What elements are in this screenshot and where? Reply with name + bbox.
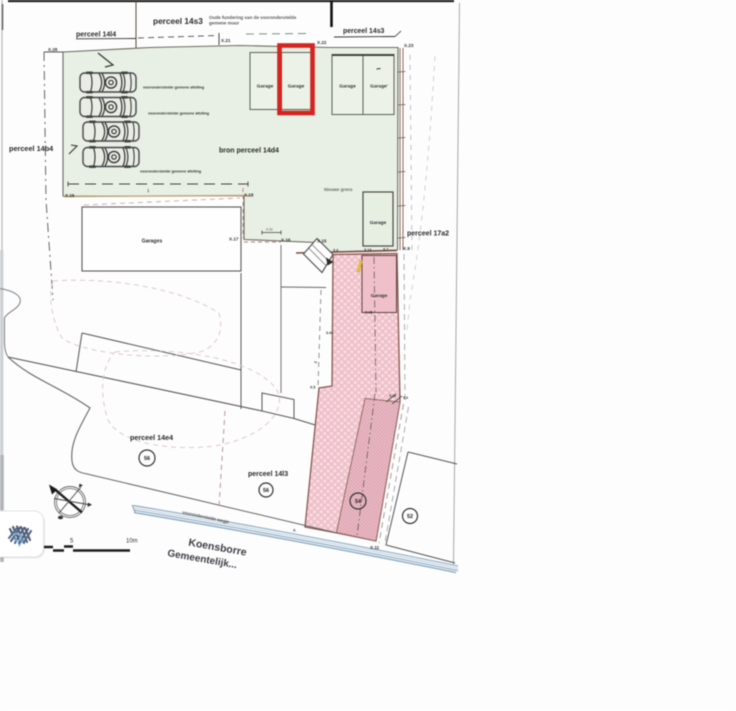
svg-text:X.11: X.11 xyxy=(370,545,380,550)
svg-text:X.9: X.9 xyxy=(403,246,410,251)
svg-text:Garage: Garage xyxy=(288,84,305,90)
svg-text:10m: 10m xyxy=(126,539,138,545)
svg-text:56: 56 xyxy=(144,456,150,462)
svg-text:Garage: Garage xyxy=(339,84,356,90)
svg-text:X.17: X.17 xyxy=(229,237,239,242)
svg-text:X.16: X.16 xyxy=(281,238,291,243)
svg-text:Garage: Garage xyxy=(371,293,388,299)
svg-text:X.26: X.26 xyxy=(48,47,58,52)
svg-text:Oude fundering van de vooronde: Oude fundering van de vooronderstelde xyxy=(209,15,297,20)
svg-text:X.12: X.12 xyxy=(389,394,396,398)
svg-text:52: 52 xyxy=(407,514,413,520)
svg-text:vooronderstelde gemene afstlin: vooronderstelde gemene afstling xyxy=(148,111,210,116)
svg-text:X.21: X.21 xyxy=(221,38,231,43)
svg-text:perceel 14l4: perceel 14l4 xyxy=(76,32,116,39)
svg-text:X.6: X.6 xyxy=(333,249,338,253)
svg-text:56: 56 xyxy=(263,488,269,494)
svg-text:X.15: X.15 xyxy=(317,239,327,244)
svg-text:X.: X. xyxy=(293,529,296,533)
svg-text:vooronderstelde gemene afstlin: vooronderstelde gemene afstling xyxy=(143,85,205,90)
svg-text:Garage': Garage' xyxy=(370,84,388,90)
svg-text:4.3x: 4.3x xyxy=(266,228,273,232)
svg-text:X.5: X.5 xyxy=(310,386,315,390)
svg-text:5.0: 5.0 xyxy=(403,396,408,400)
svg-text:perceel 14l3: perceel 14l3 xyxy=(248,471,288,478)
svg-text:Garages: Garages xyxy=(142,239,163,245)
svg-text:perceel 14e4: perceel 14e4 xyxy=(130,433,173,442)
svg-text:X.16: X.16 xyxy=(65,193,75,198)
svg-text:perceel 17a2: perceel 17a2 xyxy=(407,231,449,238)
svg-text:X.14: X.14 xyxy=(364,248,371,252)
svg-text:X.23: X.23 xyxy=(404,43,414,48)
svg-text:X.15: X.15 xyxy=(365,311,372,315)
svg-text:54: 54 xyxy=(355,499,362,505)
svg-text:bron perceel 14d4: bron perceel 14d4 xyxy=(219,148,279,155)
svg-text:vooronderstelde gemene afstlin: vooronderstelde gemene afstling xyxy=(140,169,202,174)
svg-text:perceel 14s3: perceel 14s3 xyxy=(153,16,203,26)
svg-text:Garage: Garage xyxy=(257,84,274,90)
svg-text:X.22: X.22 xyxy=(317,40,327,45)
svg-text:perceel 14s3: perceel 14s3 xyxy=(343,28,385,35)
svg-text:Garage: Garage xyxy=(370,220,387,226)
svg-text:X.18: X.18 xyxy=(244,193,254,198)
svg-text:Nieuwe grens: Nieuwe grens xyxy=(324,187,353,192)
svg-text:X.7: X.7 xyxy=(383,248,388,252)
svg-text:3.4x: 3.4x xyxy=(326,331,333,335)
svg-text:gemene muur: gemene muur xyxy=(209,21,239,26)
svg-text:perceel 14b4: perceel 14b4 xyxy=(9,144,54,153)
